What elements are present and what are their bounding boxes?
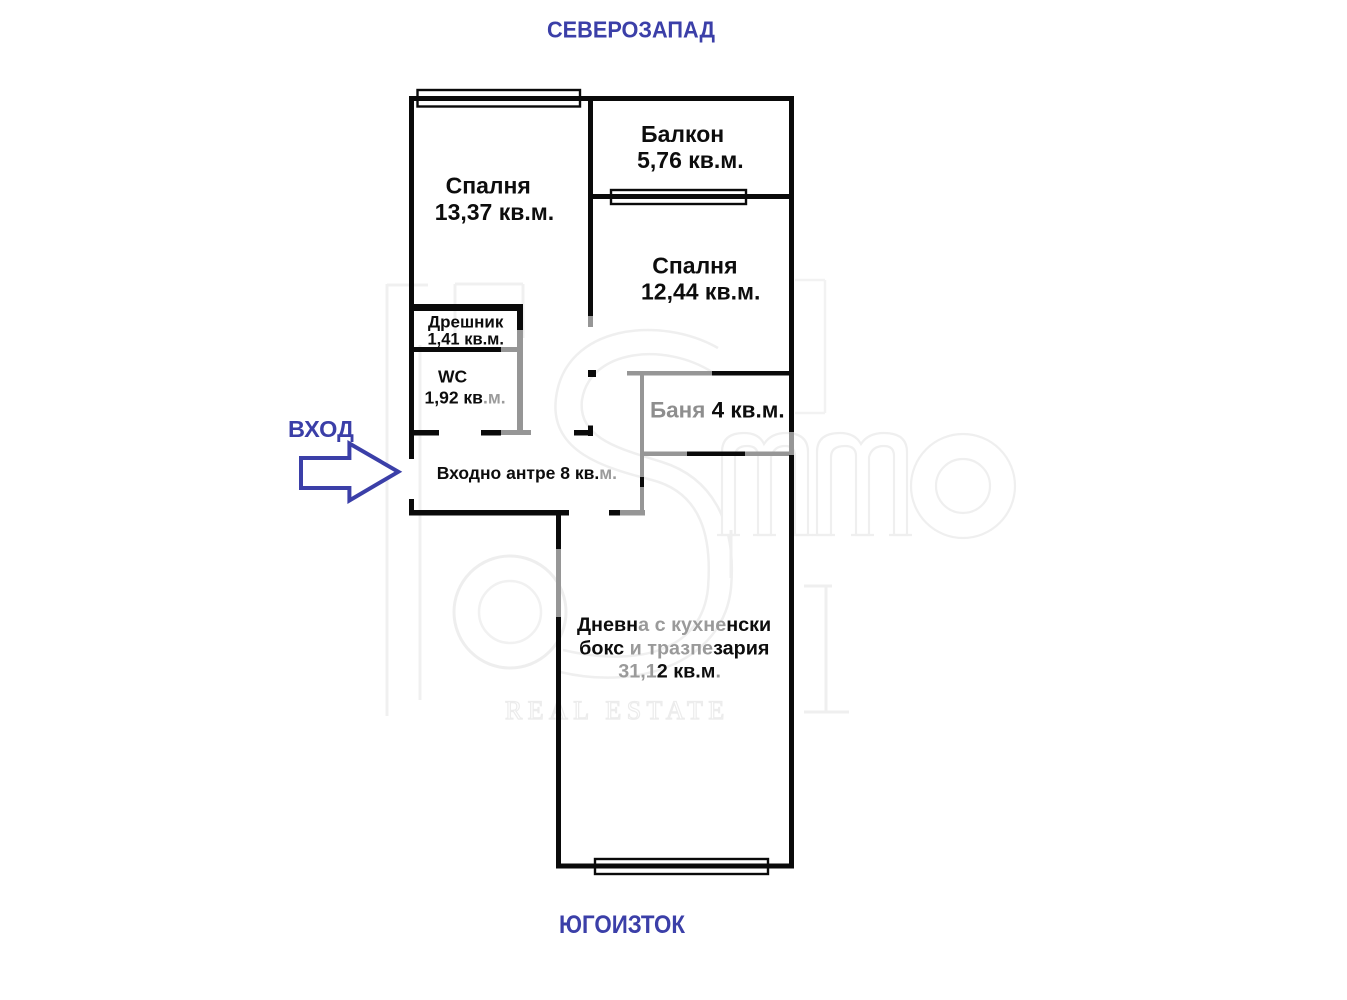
svg-text:Балкон: Балкон bbox=[641, 121, 724, 147]
svg-text:Баня 4 кв.м.: Баня 4 кв.м. bbox=[650, 397, 785, 422]
svg-text:5,76 кв.м.: 5,76 кв.м. bbox=[637, 147, 744, 173]
svg-text:ЮГОИЗТОК: ЮГОИЗТОК bbox=[559, 911, 686, 939]
svg-text:Спалня: Спалня bbox=[446, 172, 531, 198]
svg-text:1,92 кв.м.: 1,92 кв.м. bbox=[425, 388, 506, 408]
svg-text:ВХОД: ВХОД bbox=[288, 416, 354, 442]
svg-text:Дрешник: Дрешник bbox=[428, 313, 504, 332]
svg-text:СЕВЕРОЗАПАД: СЕВЕРОЗАПАД bbox=[547, 17, 715, 43]
svg-text:Входно антре 8 кв.м.: Входно антре 8 кв.м. bbox=[437, 463, 617, 483]
svg-text:12,44 кв.м.: 12,44 кв.м. bbox=[641, 279, 760, 305]
svg-text:бокс и тразпезария: бокс и тразпезария bbox=[579, 638, 769, 660]
svg-text:WC: WC bbox=[438, 367, 468, 387]
svg-text:Дневна с кухненски: Дневна с кухненски bbox=[577, 614, 771, 636]
svg-text:REAL ESTATE: REAL ESTATE bbox=[505, 696, 730, 725]
svg-text:31,12 кв.м.: 31,12 кв.м. bbox=[618, 661, 721, 683]
svg-text:Спалня: Спалня bbox=[652, 252, 737, 278]
svg-text:1,41 кв.м.: 1,41 кв.м. bbox=[428, 331, 504, 349]
svg-text:13,37 кв.м.: 13,37 кв.м. bbox=[435, 199, 554, 225]
